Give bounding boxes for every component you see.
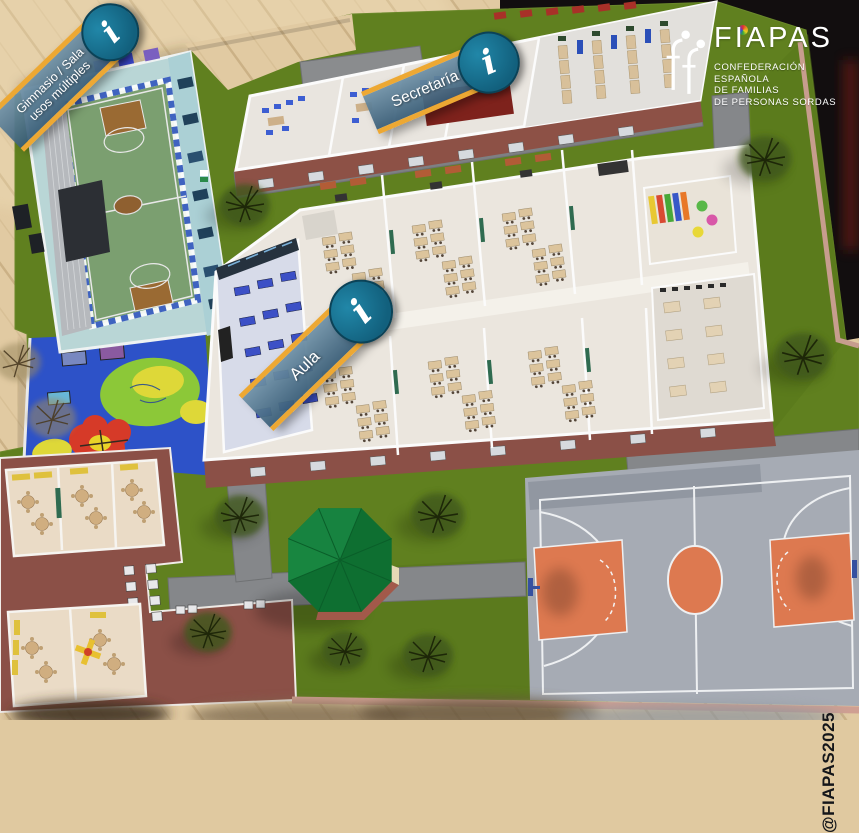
- fiapas-logo: FIAPAS CONFEDERACIÓN ESPAÑOLA DE FAMILIA…: [650, 10, 858, 114]
- info-glyph: i: [93, 14, 128, 50]
- workshop-room: [652, 274, 764, 420]
- info-glyph: i: [342, 292, 381, 332]
- info-glyph: i: [475, 42, 503, 84]
- hotspot-label: Aula: [286, 347, 324, 384]
- logo-tagline: CONFEDERACIÓN ESPAÑOLA DE FAMILIAS DE PE…: [714, 62, 836, 108]
- fiapas-logo-icon: [664, 14, 706, 108]
- logo-wordmark: FIAPAS: [714, 22, 833, 55]
- colorful-classroom: [644, 176, 736, 264]
- outdoor-basketball-court: [525, 450, 859, 706]
- watermark: @FIAPAS2025: [819, 712, 839, 833]
